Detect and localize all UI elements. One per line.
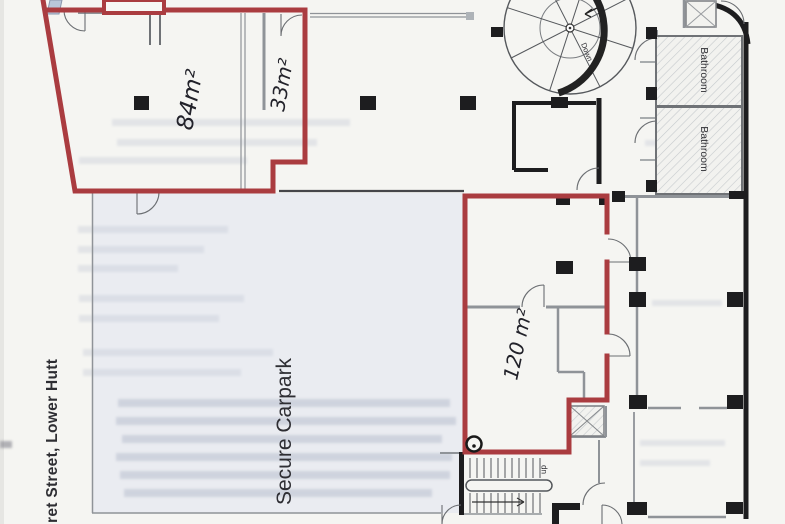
bathroom-lower-label: Bathroom <box>698 126 710 172</box>
street-label: ret Street, Lower Hutt <box>44 359 61 523</box>
elevator-shaft-mid <box>570 406 604 436</box>
premises-84-bay <box>104 0 164 13</box>
stair-up-label: up <box>539 465 548 474</box>
scanned-floor-plan: ret Street, Lower Hutt Secure Carpark 84… <box>0 0 785 524</box>
stair-handrail <box>466 480 552 491</box>
carpark-label: Secure Carpark <box>273 357 296 505</box>
door-symbol-circle <box>467 437 482 452</box>
elevator-shaft-top <box>686 1 716 27</box>
spiral-center-dot <box>569 27 572 30</box>
bathroom-upper-label: Bathroom <box>698 47 710 93</box>
